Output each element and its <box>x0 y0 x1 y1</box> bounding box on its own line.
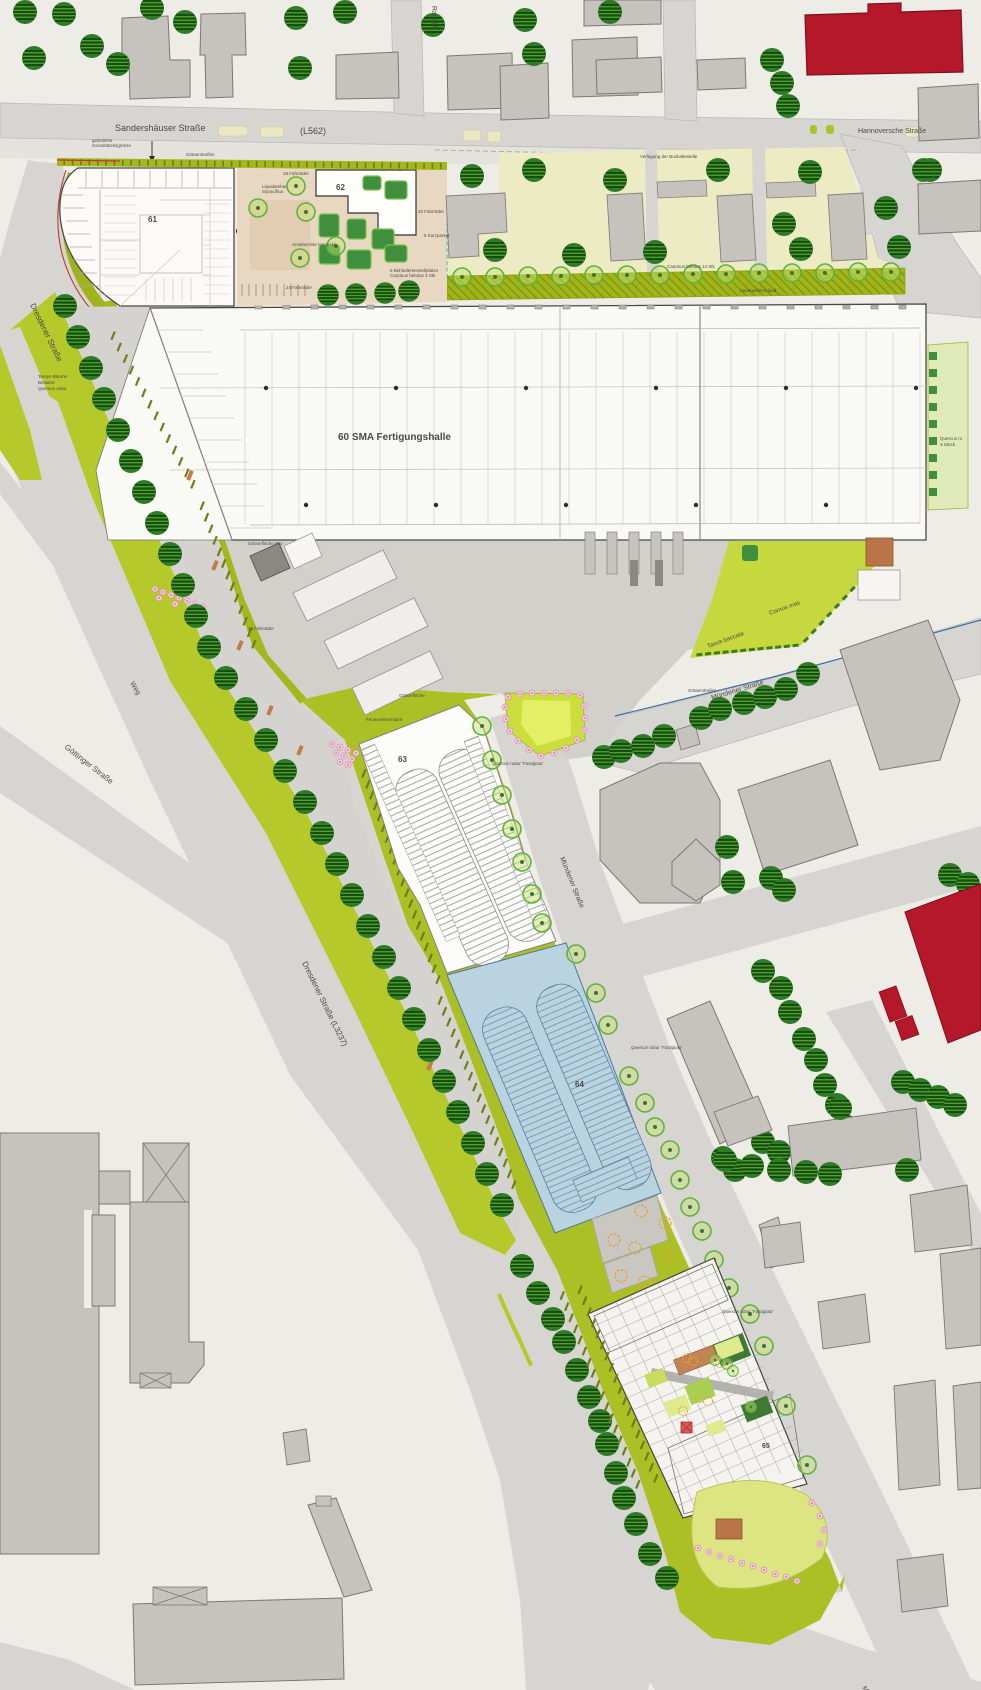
svg-text:Gräserfläche Pav: Gräserfläche Pav <box>248 541 284 546</box>
svg-text:Sandershäuser Straße: Sandershäuser Straße <box>115 123 206 133</box>
svg-text:Grundstücksgrenze: Grundstücksgrenze <box>92 143 132 148</box>
svg-text:Quercus ro: Quercus ro <box>940 436 963 441</box>
svg-text:62: 62 <box>336 183 345 192</box>
svg-text:Gräserstreifen: Gräserstreifen <box>688 688 717 693</box>
svg-text:24 Fahrräder: 24 Fahrräder <box>286 285 313 290</box>
svg-text:Quercus robur 'Fastigiata': Quercus robur 'Fastigiata' <box>492 761 543 766</box>
svg-text:Feuerwehreinfahrt: Feuerwehreinfahrt <box>366 717 403 722</box>
svg-text:Rausch: Rausch <box>430 6 438 30</box>
svg-text:Verlagung der Bushaltestelle: Verlagung der Bushaltestelle <box>640 154 698 159</box>
svg-text:Gräserfläche: Gräserfläche <box>399 693 425 698</box>
svg-text:5 Kurzparker: 5 Kurzparker <box>424 233 450 238</box>
svg-text:65: 65 <box>762 1443 770 1450</box>
svg-text:20 Fahrräder: 20 Fahrräder <box>418 209 445 214</box>
svg-text:Hannoversche Straße: Hannoversche Straße <box>858 128 926 135</box>
svg-text:'Beuys-Bäume': 'Beuys-Bäume' <box>38 374 68 379</box>
svg-text:(L562): (L562) <box>300 126 326 136</box>
svg-text:Gräserstreifen: Gräserstreifen <box>186 152 215 157</box>
svg-text:61: 61 <box>148 215 157 224</box>
svg-text:60 SMA Fertigungshalle: 60 SMA Fertigungshalle <box>338 432 451 443</box>
svg-text:3 Stück: 3 Stück <box>940 442 956 447</box>
svg-text:Quercus robur 'Fastigiata': Quercus robur 'Fastigiata' <box>631 1045 682 1050</box>
svg-text:Feuerwehrvorland: Feuerwehrvorland <box>740 288 777 293</box>
svg-text:64: 64 <box>575 1080 584 1089</box>
svg-text:Amelanchier lamarckii: Amelanchier lamarckii <box>292 242 336 247</box>
svg-text:Quercus robur 'Fastigiata': Quercus robur 'Fastigiata' <box>722 1309 773 1314</box>
svg-text:Bestand: Bestand <box>38 380 55 385</box>
svg-text:Quercus robur: Quercus robur <box>38 386 67 391</box>
svg-text:15 Fahrräder: 15 Fahrräder <box>248 626 275 631</box>
svg-text:63: 63 <box>398 755 407 764</box>
svg-text:Carpinus betulus 3 Stk: Carpinus betulus 3 Stk <box>390 273 436 278</box>
svg-text:Carpinus betulus 14 Stk: Carpinus betulus 14 Stk <box>667 264 716 269</box>
svg-text:Styraciflua: Styraciflua <box>262 189 284 194</box>
svg-text:18 Fahrräder: 18 Fahrräder <box>283 171 310 176</box>
